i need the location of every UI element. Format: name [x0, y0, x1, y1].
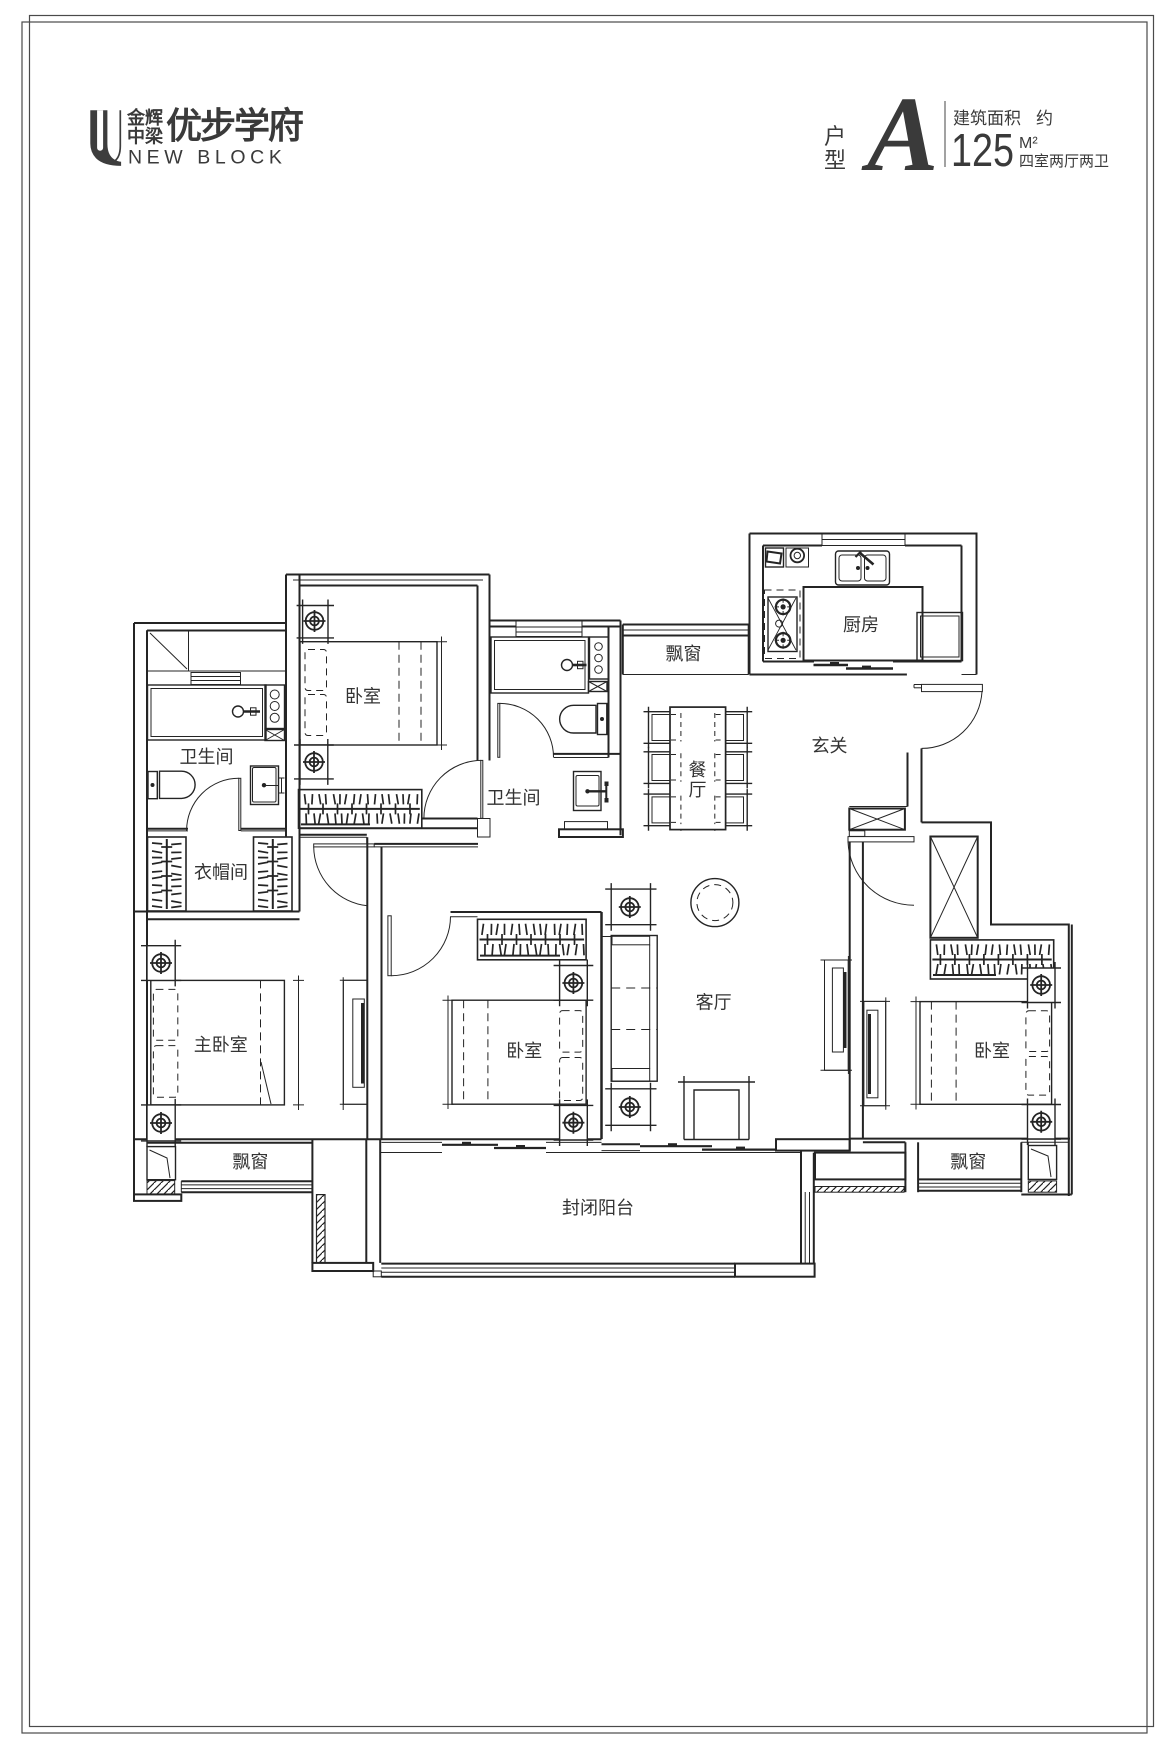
- svg-text:卧室: 卧室: [506, 1041, 542, 1061]
- svg-text:125: 125: [951, 124, 1014, 176]
- svg-text:户: 户: [824, 124, 846, 149]
- svg-text:客厅: 客厅: [696, 993, 732, 1013]
- svg-text:A: A: [861, 76, 938, 194]
- svg-text:四室两厅两卫: 四室两厅两卫: [1019, 153, 1109, 170]
- svg-text:厅: 厅: [689, 780, 707, 800]
- svg-text:封闭阳台: 封闭阳台: [562, 1198, 634, 1218]
- svg-text:飘窗: 飘窗: [950, 1152, 986, 1172]
- svg-text:约: 约: [1036, 109, 1053, 128]
- svg-text:卧室: 卧室: [345, 687, 381, 707]
- svg-text:优步学府: 优步学府: [166, 105, 303, 146]
- svg-text:中梁: 中梁: [127, 126, 164, 147]
- svg-text:卫生间: 卫生间: [487, 788, 541, 808]
- svg-text:飘窗: 飘窗: [666, 644, 702, 664]
- svg-text:卫生间: 卫生间: [180, 747, 234, 767]
- svg-text:金辉: 金辉: [126, 107, 163, 128]
- svg-text:M²: M²: [1019, 135, 1038, 152]
- svg-text:餐: 餐: [689, 760, 707, 780]
- svg-text:型: 型: [824, 148, 846, 173]
- svg-text:衣帽间: 衣帽间: [194, 863, 248, 883]
- svg-text:NEW BLOCK: NEW BLOCK: [128, 147, 286, 169]
- svg-text:厨房: 厨房: [843, 615, 879, 635]
- svg-text:卧室: 卧室: [974, 1041, 1010, 1061]
- svg-text:玄关: 玄关: [812, 736, 848, 756]
- svg-text:主卧室: 主卧室: [194, 1035, 248, 1055]
- svg-text:飘窗: 飘窗: [232, 1152, 268, 1172]
